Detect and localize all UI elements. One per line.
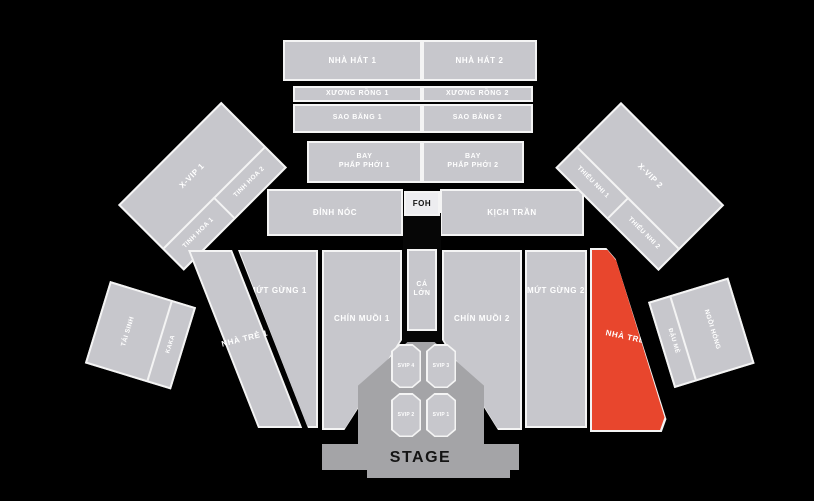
zone-kich-tran[interactable]: KỊCH TRẦN xyxy=(440,189,584,236)
zone-label: SVIP 1 xyxy=(426,393,456,437)
zone-label: CÁ LỚN xyxy=(409,281,435,299)
zone-label: X-VIP 1 xyxy=(178,161,207,190)
zone-ngoi-hong-block: ĐẬU MÈ NGỒI HÓNG xyxy=(648,277,755,388)
zone-label: XƯƠNG RỒNG 2 xyxy=(446,90,509,99)
zone-x-vip-2-block: X-VIP 2 THIẾU NHI 1 THIẾU NHI 2 xyxy=(555,102,724,271)
zone-sao-bang-1[interactable]: SAO BĂNG 1 xyxy=(293,104,422,133)
zone-xuong-rong-2[interactable]: XƯƠNG RỒNG 2 xyxy=(422,86,533,102)
zone-foh: FOH xyxy=(404,191,440,216)
zone-label: MỨT GỪNG 1 xyxy=(238,286,318,296)
zone-svip-2[interactable]: SVIP 2 xyxy=(391,393,421,437)
zone-label: SVIP 4 xyxy=(391,344,421,388)
stage-platform-lip xyxy=(367,470,510,478)
stage-label: STAGE xyxy=(322,446,519,470)
zone-label: SVIP 3 xyxy=(426,344,456,388)
zone-nha-hat-1[interactable]: NHÀ HÁT 1 xyxy=(283,40,422,81)
zone-mut-gung-2[interactable]: MỨT GỪNG 2 xyxy=(525,250,587,428)
zone-x-vip-1-block: X-VIP 1 TINH HOA 1 TINH HOA 2 xyxy=(118,102,287,271)
zone-label: CHÍN MUỒI 1 xyxy=(322,314,402,324)
zone-label: SAO BĂNG 2 xyxy=(453,114,503,123)
zone-label: BAY xyxy=(465,153,481,162)
zone-label: FOH xyxy=(413,199,431,209)
zone-bay-phap-phoi-1[interactable]: BAY PHẤP PHỚI 1 xyxy=(307,141,422,183)
zone-label: XƯƠNG RỒNG 1 xyxy=(326,90,389,99)
zone-label: SVIP 2 xyxy=(391,393,421,437)
zone-nha-hat-2[interactable]: NHÀ HÁT 2 xyxy=(422,40,537,81)
zone-label: TÁI SINH xyxy=(121,316,138,348)
zone-label: X-VIP 2 xyxy=(635,162,664,191)
zone-sao-bang-2[interactable]: SAO BĂNG 2 xyxy=(422,104,533,133)
zone-label: CHÍN MUỒI 2 xyxy=(442,314,522,324)
zone-svip-1[interactable]: SVIP 1 xyxy=(426,393,456,437)
zone-label: KỊCH TRẦN xyxy=(487,208,536,218)
zone-label: ĐỈNH NÓC xyxy=(313,208,357,218)
zone-label: KAKA xyxy=(165,334,178,354)
zone-label: SAO BĂNG 1 xyxy=(333,114,383,123)
zone-xuong-rong-1[interactable]: XƯƠNG RỒNG 1 xyxy=(293,86,422,102)
zone-label: BAY xyxy=(357,153,373,162)
zone-label: NHÀ TRẺ 1 xyxy=(221,328,270,349)
zone-label: NHÀ HÁT 2 xyxy=(455,56,503,66)
zone-svip-3[interactable]: SVIP 3 xyxy=(426,344,456,388)
zone-ca-lon[interactable]: CÁ LỚN xyxy=(407,249,437,331)
seating-map: NHÀ HÁT 1 NHÀ HÁT 2 XƯƠNG RỒNG 1 XƯƠNG R… xyxy=(0,0,814,501)
zone-tai-sinh-block: TÁI SINH KAKA xyxy=(85,281,196,390)
zone-label: PHẤP PHỚI 2 xyxy=(447,162,498,171)
zone-label: NGỒI HÓNG xyxy=(702,308,722,350)
zone-label: MỨT GỪNG 2 xyxy=(527,286,585,296)
zone-label: ĐẬU MÈ xyxy=(665,328,680,355)
zone-bay-phap-phoi-2[interactable]: BAY PHẤP PHỚI 2 xyxy=(422,141,524,183)
zone-label: NHÀ HÁT 1 xyxy=(328,56,376,66)
zone-nha-tre-2[interactable]: NHÀ TRẺ 2 xyxy=(590,248,668,432)
zone-dinh-noc[interactable]: ĐỈNH NÓC xyxy=(267,189,403,236)
zone-label: PHẤP PHỚI 1 xyxy=(339,162,390,171)
zone-svip-4[interactable]: SVIP 4 xyxy=(391,344,421,388)
